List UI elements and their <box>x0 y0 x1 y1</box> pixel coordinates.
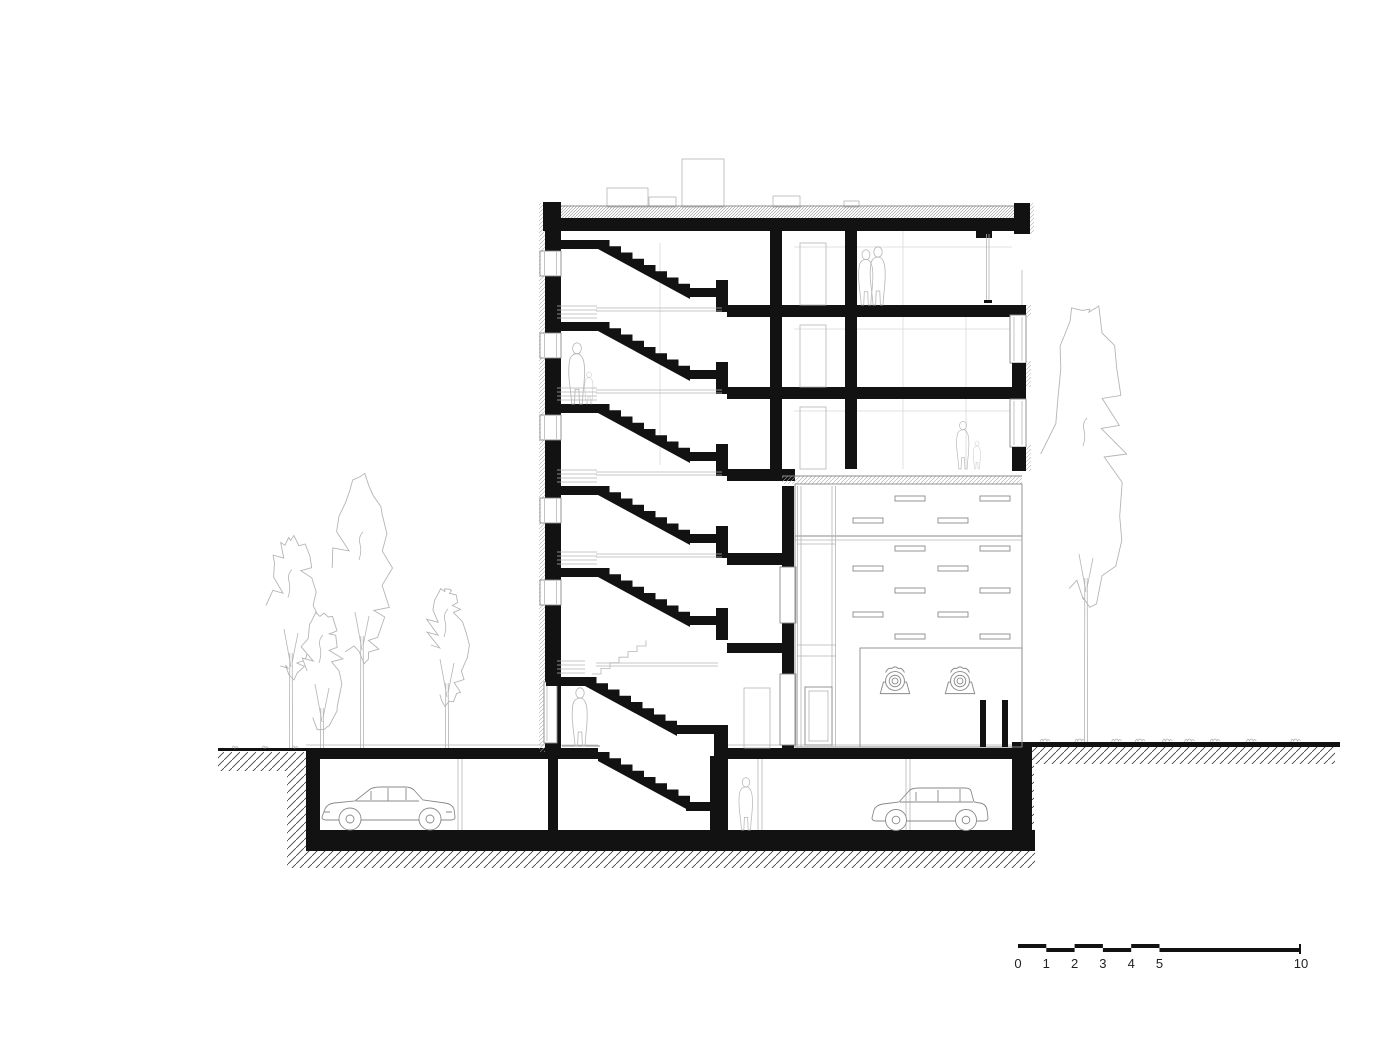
entrance-wall <box>782 486 794 567</box>
vent-slot <box>938 518 968 523</box>
left-facade-wall <box>545 203 561 752</box>
vent-slot <box>853 566 883 571</box>
scale-segment <box>1103 948 1131 952</box>
wall-lamp-icon <box>880 667 909 694</box>
ground-line-left <box>218 748 308 751</box>
scale-label: 10 <box>1294 956 1308 971</box>
stair-flight <box>585 677 677 736</box>
interior-door-outline <box>800 243 826 305</box>
stair-landing <box>546 322 598 331</box>
scale-segment <box>1018 944 1046 948</box>
stair-shaft-stub <box>716 362 728 394</box>
scale-end-tick <box>1299 944 1301 954</box>
entrance-window <box>780 567 796 623</box>
entrance-wall <box>782 745 794 753</box>
corridor-door-outline <box>744 688 770 748</box>
grass-tuft <box>1112 739 1122 742</box>
rooftop-equipment <box>682 159 724 207</box>
facade-window <box>1010 399 1026 447</box>
slab-edge-finish <box>1026 305 1031 317</box>
entrance-window <box>780 674 796 745</box>
interior-door-outline <box>800 325 826 387</box>
grass-tuft <box>1075 739 1085 742</box>
earth-hatch <box>287 771 307 851</box>
scale-label: 5 <box>1156 956 1163 971</box>
earth-hatch <box>287 851 1035 868</box>
stair-shaft-stub <box>714 725 728 756</box>
vent-slot <box>895 588 925 593</box>
parapet-right <box>1014 203 1030 234</box>
rear-door-frame <box>1002 700 1008 747</box>
spandrel-finish <box>1026 445 1031 471</box>
grass-tuft <box>262 746 268 748</box>
basement-inner-wall <box>548 758 558 831</box>
grass-tuft <box>1162 739 1172 742</box>
left-wall-finish <box>539 203 545 752</box>
ground-floor-window <box>544 682 557 743</box>
section-drawing-page: 01234510 <box>0 0 1400 1064</box>
basement-wall-left <box>306 748 320 832</box>
rooftop-equipment <box>649 197 676 207</box>
vent-slot <box>895 546 925 551</box>
basement-stair-wall <box>710 756 728 832</box>
tree <box>1041 306 1127 742</box>
rooftop-equipment <box>773 196 800 207</box>
grass-tuft <box>1291 739 1301 742</box>
wing-roof <box>782 476 1022 484</box>
person-figure-child <box>973 441 980 469</box>
vent-slot <box>980 546 1010 551</box>
stair-landing <box>546 240 598 249</box>
stair-flight <box>598 752 690 811</box>
stair-flight <box>598 486 690 545</box>
stair-window <box>540 580 561 605</box>
grass-tuft <box>1210 739 1220 742</box>
earth-hatch <box>1032 747 1335 764</box>
spandrel-finish <box>1026 361 1031 387</box>
basement-wall-right <box>1012 746 1032 832</box>
scale-bar: 01234510 <box>1014 944 1308 971</box>
sconce-wall <box>860 648 1022 747</box>
stair-flight <box>598 568 690 627</box>
spandrel-wall <box>1012 447 1026 471</box>
vent-slot <box>938 566 968 571</box>
scale-label: 2 <box>1071 956 1078 971</box>
stair-window <box>540 415 561 440</box>
vent-slot <box>980 496 1010 501</box>
stair-landing-slab <box>675 725 718 734</box>
grass-tuft <box>232 746 238 748</box>
roof-insulation <box>557 206 1014 218</box>
vent-slot <box>895 634 925 639</box>
section-drawing: 01234510 <box>0 0 1400 1064</box>
glazing-cap <box>984 231 992 234</box>
stair-shaft-stub <box>716 526 728 558</box>
grass-tuft <box>1040 739 1050 742</box>
grass-tuft <box>1135 739 1145 742</box>
corridor-wall <box>845 231 857 469</box>
roof-slab <box>546 218 1022 231</box>
floor-slab <box>727 643 784 653</box>
spandrel-wall <box>1012 363 1026 387</box>
stair-landing <box>546 677 586 686</box>
stair-landing <box>546 404 598 413</box>
tree-crown <box>1041 306 1127 607</box>
ground-line-right <box>1012 742 1340 747</box>
scale-segment <box>1131 944 1159 948</box>
stair-window <box>540 251 561 276</box>
person-figure <box>572 688 587 746</box>
wall-lamp-icon <box>945 667 974 694</box>
person-figure <box>739 778 753 830</box>
vent-slot <box>853 518 883 523</box>
vent-slot <box>938 612 968 617</box>
stair-landing <box>546 568 598 577</box>
car-wagon <box>872 788 988 831</box>
vent-slot <box>853 612 883 617</box>
scale-segment <box>1046 948 1074 952</box>
interior-door-outline <box>800 407 826 469</box>
scale-label: 0 <box>1014 956 1021 971</box>
facade-window <box>1010 315 1026 363</box>
scale-label: 3 <box>1099 956 1106 971</box>
car-sedan <box>322 787 455 830</box>
grass-tuft <box>1184 739 1194 742</box>
stair-flight <box>598 240 690 299</box>
ground-floor-slab <box>727 748 1012 759</box>
stair-shaft-stub <box>716 280 728 312</box>
scale-segment <box>1075 944 1103 948</box>
rooftop-equipment <box>607 188 648 207</box>
scale-label: 1 <box>1043 956 1050 971</box>
stair-window <box>540 498 561 523</box>
parapet-finish <box>1030 203 1034 234</box>
stair-flight <box>598 322 690 381</box>
stair-landing <box>546 486 598 495</box>
person-figure <box>957 421 969 469</box>
rear-door-frame <box>980 700 986 747</box>
person-figure <box>859 250 873 305</box>
person-figure <box>870 247 885 305</box>
tree <box>332 473 392 748</box>
corridor-wall <box>770 231 782 476</box>
scale-label: 4 <box>1128 956 1135 971</box>
stair-landing-slab <box>686 802 712 811</box>
up-flight-outline <box>592 640 646 674</box>
stair-window <box>540 333 561 358</box>
vent-slot <box>895 496 925 501</box>
stair-shaft-stub <box>716 444 728 476</box>
earth-hatch <box>218 752 308 771</box>
vent-slot <box>980 588 1010 593</box>
floor-slab <box>727 553 784 565</box>
stair-flight <box>598 404 690 463</box>
entrance-wall <box>782 623 794 674</box>
person-figure <box>569 343 585 404</box>
basement-floor-slab <box>306 830 1035 851</box>
vent-slot <box>980 634 1010 639</box>
grass-tuft <box>1246 739 1256 742</box>
glazing-cap <box>984 300 992 303</box>
stair-core <box>546 240 728 811</box>
tree <box>427 589 470 748</box>
tree-crown <box>332 473 392 663</box>
stair-shaft-stub <box>716 608 728 640</box>
annex-wing-elevation <box>782 476 1022 747</box>
scale-segment <box>1160 948 1302 952</box>
